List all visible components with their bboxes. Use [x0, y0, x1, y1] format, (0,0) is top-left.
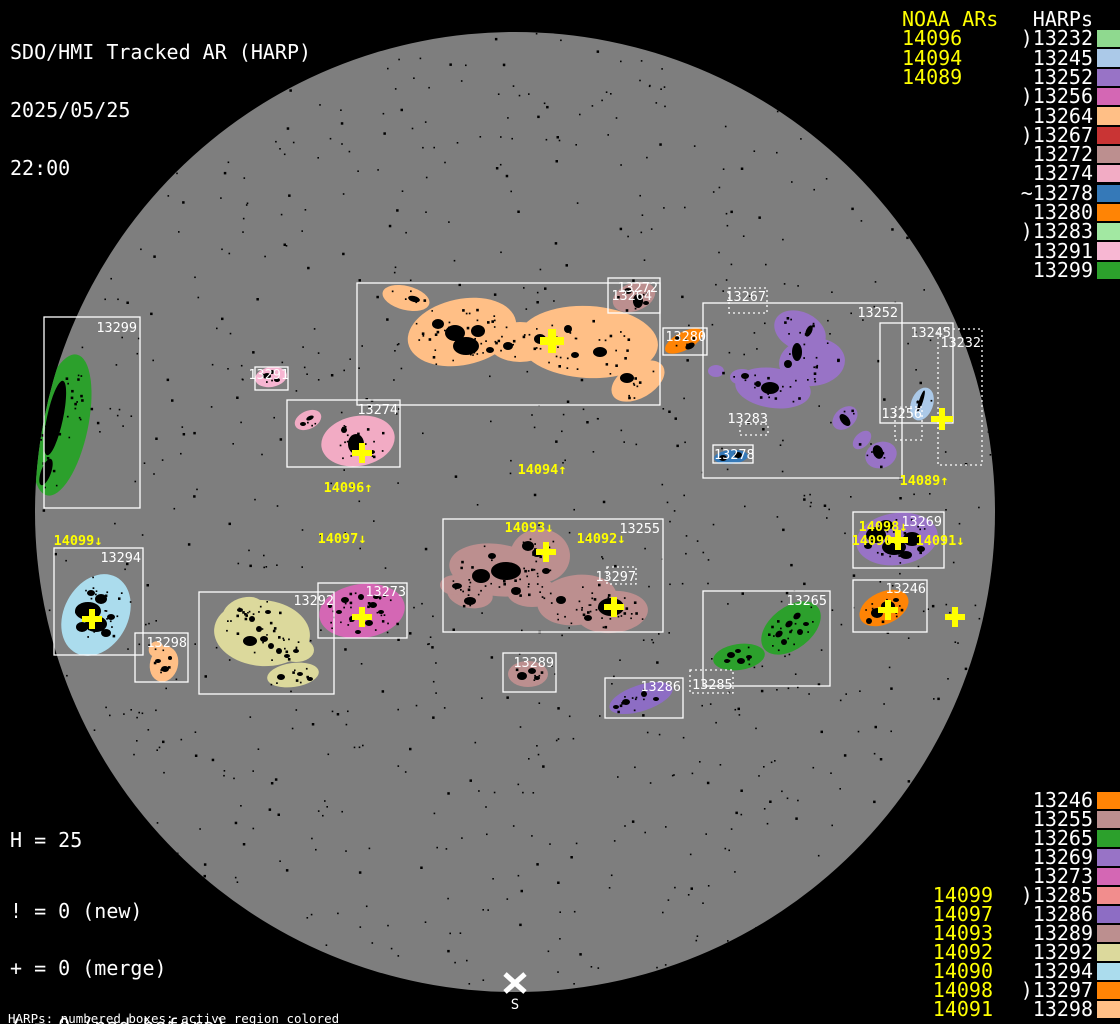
harp-color-swatch: [1097, 849, 1120, 866]
harp-color-swatch: [1097, 811, 1120, 828]
harp-color-swatch: [1097, 944, 1120, 961]
footnote-harps: HARPs: numbered boxes; active region col…: [8, 1013, 445, 1024]
stat-merge: + = 0 (merge): [10, 959, 239, 978]
harp-color-swatch: [1097, 887, 1120, 904]
harp-color-swatch: [1097, 868, 1120, 885]
footnotes: HARPs: numbered boxes; active region col…: [8, 989, 445, 1024]
harp-color-swatch: [1097, 963, 1120, 980]
harp-color-swatch: [1097, 792, 1120, 809]
noaa-ar-item: 14091: [933, 1000, 993, 1018]
harp-legend-row: 13298: [1033, 1000, 1093, 1018]
harp-color-swatch: [1097, 982, 1120, 999]
harp-color-swatch: [1097, 1001, 1120, 1018]
harp-color-swatch: [1097, 925, 1120, 942]
stat-new: ! = 0 (new): [10, 902, 239, 921]
harp-count: H = 25: [10, 828, 82, 852]
harp-color-swatch: [1097, 830, 1120, 847]
harp-map-canvas: 1329913291132741326413272132801326713252…: [0, 0, 1120, 1024]
harp-color-swatch: [1097, 906, 1120, 923]
